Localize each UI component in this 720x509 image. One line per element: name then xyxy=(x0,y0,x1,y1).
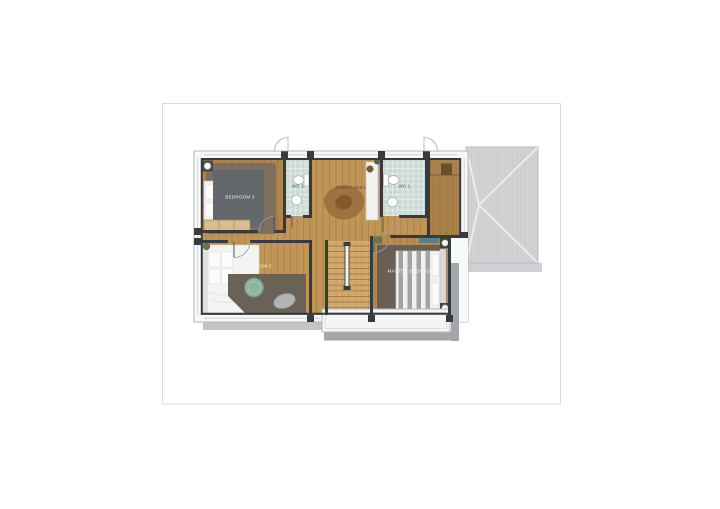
wall-junction xyxy=(423,151,430,158)
plant-icon xyxy=(375,237,382,244)
wall-junction xyxy=(307,151,314,158)
lamp-icon xyxy=(442,240,448,246)
stair-railing xyxy=(345,244,349,288)
pillow xyxy=(209,269,220,284)
room-label-bedroom-2: BEDROOM 2 xyxy=(242,264,272,269)
room-label-family-area: FAMILY AREA xyxy=(336,185,366,190)
page: BEDROOM 3 WC 2 FAMILY AREA WC 1 WALK IN … xyxy=(0,0,720,509)
ottoman xyxy=(245,278,264,297)
side-shadow-band xyxy=(451,263,459,341)
wall-junction xyxy=(446,315,453,322)
stair-newel xyxy=(344,286,351,290)
stool xyxy=(367,166,373,172)
wardrobe-door xyxy=(441,164,452,176)
master-bedroom-room xyxy=(375,237,450,313)
lamp-icon xyxy=(204,163,211,170)
balcony-shadow xyxy=(324,332,458,341)
bench xyxy=(419,238,439,243)
room-label-bedroom-3: BEDROOM 3 xyxy=(225,195,255,200)
toilet-tank xyxy=(304,174,309,186)
floor-plan-image: BEDROOM 3 WC 2 FAMILY AREA WC 1 WALK IN … xyxy=(0,0,720,509)
blanket-stripe xyxy=(408,251,413,309)
headboard xyxy=(202,245,208,314)
wall-junction xyxy=(461,232,468,238)
roof xyxy=(466,147,538,263)
pillow xyxy=(432,283,439,305)
wall-junction xyxy=(307,315,314,322)
pillow xyxy=(222,252,233,267)
sink-icon xyxy=(292,195,302,205)
plant-icon xyxy=(203,243,210,250)
blanket-stripe xyxy=(426,251,431,309)
staircase xyxy=(327,241,372,315)
room-label-walk-in-line1: WALK IN xyxy=(436,183,455,188)
room-label-wc-2: WC 2 xyxy=(292,184,304,189)
room-label-walk-in-line2: CLOSET xyxy=(436,190,455,195)
wall-junction xyxy=(368,315,375,322)
sink-icon xyxy=(388,197,398,206)
wall-junction xyxy=(194,238,201,245)
building-shadow xyxy=(203,322,325,330)
pillow xyxy=(209,252,220,267)
walk-in-closet-room xyxy=(430,159,460,175)
wall-junction xyxy=(194,228,201,235)
balcony xyxy=(322,309,450,332)
wall-junction xyxy=(281,151,288,158)
room-label-wc-1: WC 1 xyxy=(399,184,411,189)
stair-newel xyxy=(344,242,351,246)
roof-eave-band xyxy=(458,263,542,272)
wall-junction xyxy=(378,151,385,158)
room-label-master-bedroom: MASTER BEDROOM xyxy=(388,269,435,274)
blanket-stripe xyxy=(417,251,422,309)
blanket-stripe xyxy=(399,251,404,309)
toilet-icon xyxy=(388,176,399,185)
headboard xyxy=(440,249,446,311)
